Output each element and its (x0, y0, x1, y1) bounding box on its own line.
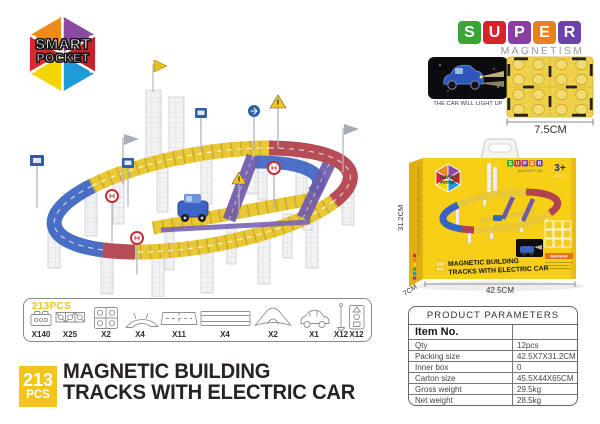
row-value: 12pcs (513, 340, 577, 350)
table-row: Item No. (409, 325, 577, 340)
part-count: X140 (27, 330, 55, 339)
table-row: Carton size 45.5X44X65CM (409, 373, 577, 384)
row-label: Net weight (409, 395, 513, 405)
super-logo: S U P E R (458, 21, 581, 44)
super-letter-s: S (458, 21, 481, 44)
product-sheet: SMART POCKET S U P E R MAGNETISM THE CAR… (0, 0, 600, 424)
pcs-label: PCS (26, 390, 50, 402)
page-title-line1: MAGNETIC BUILDING (63, 362, 409, 383)
part-icon-traffic-signs (350, 306, 365, 330)
svg-text:213: 213 (436, 261, 444, 266)
super-letter-r: R (558, 21, 581, 44)
super-letter-p: P (508, 21, 531, 44)
product-illustration (15, 52, 400, 297)
pcs-badge: 213 PCS (19, 366, 57, 407)
box-dim-width: 42.5CM (486, 286, 514, 295)
table-row: Packing size 42.5X7X31.2CM (409, 351, 577, 362)
part-count: X4 (126, 330, 154, 339)
part-icon-base-brick (31, 312, 51, 326)
part-count: X2 (259, 330, 287, 339)
parts-list: 213PCS (23, 298, 372, 342)
part-icon-pole (338, 304, 345, 330)
row-label: Gross weight (409, 384, 513, 394)
table-row: Net weight 28.5kg (409, 395, 577, 405)
row-value: 45.5X44X65CM (513, 373, 577, 383)
box-super-subtitle: MAGNETISM (518, 169, 543, 173)
part-icon-curved-track (126, 313, 158, 328)
light-up-car-thumbnail (428, 57, 508, 99)
part-icon-short-track (161, 313, 197, 325)
car-caption: THE CAR WILL LIGHT UP (420, 101, 516, 107)
row-label: Packing size (409, 351, 513, 361)
part-icon-ramp-junction (255, 308, 291, 326)
table-row: Inner box 0 (409, 362, 577, 373)
part-count: X12 (345, 330, 369, 339)
page-title-line2: TRACKS WITH ELECTRIC CAR (63, 383, 409, 404)
packaging-box: MAGNETIC BUILDING TRACKS WITH ELECTRIC C… (395, 133, 600, 301)
table-row: Gross weight 29.5kg (409, 384, 577, 395)
svg-text:R: R (538, 161, 542, 167)
row-value (513, 325, 577, 339)
light-up-car-icon (428, 57, 508, 99)
part-count: X2 (92, 330, 120, 339)
row-label: Carton size (409, 373, 513, 383)
row-value: 29.5kg (513, 384, 577, 394)
part-icon-electric-car (301, 310, 329, 327)
table-title: PRODUCT PARAMETERS (409, 307, 577, 325)
super-letter-e: E (533, 21, 556, 44)
part-count: X25 (56, 330, 84, 339)
row-label: Qty (409, 340, 513, 350)
row-value: 42.5X7X31.2CM (513, 351, 577, 361)
row-label: Inner box (409, 362, 513, 372)
row-value: 0 (513, 362, 577, 372)
part-icon-square-tile (95, 308, 118, 329)
magnetic-tile-sample (506, 56, 595, 126)
box-brand-line1: SMART (440, 175, 457, 180)
box-dim-height: 31.2CM (396, 205, 405, 231)
super-letter-u: U (483, 21, 506, 44)
row-label: Item No. (409, 325, 513, 339)
svg-text:U: U (516, 161, 520, 167)
box-tile-grid-icon (545, 221, 571, 247)
part-icon-long-track (201, 312, 250, 326)
tower-flag-icon (153, 60, 167, 92)
box-age-badge: 3+ (554, 163, 566, 174)
box-brand-line2: POCKET (440, 181, 457, 185)
brand-line1: SMART (24, 37, 102, 52)
part-icon-connector-strip (56, 313, 85, 323)
box-side-text: MAGNETIC BUILDING TRACKS WITH ELECTRIC C… (417, 167, 421, 255)
product-parameters-table: PRODUCT PARAMETERS Item No. Qty 12pcs Pa… (408, 306, 578, 406)
part-count: X1 (300, 330, 328, 339)
pcs-number: 213 (23, 371, 53, 389)
row-value: 28.5kg (513, 395, 577, 405)
part-count: X11 (165, 330, 193, 339)
box-age-sub: AGES (554, 174, 566, 178)
table-row: Qty 12pcs (409, 340, 577, 351)
part-count: X4 (211, 330, 239, 339)
page-title: MAGNETIC BUILDING TRACKS WITH ELECTRIC C… (63, 362, 409, 403)
svg-text:PCS: PCS (437, 267, 445, 271)
box-warning-label: WARNING (550, 255, 568, 259)
box-car-chip (516, 239, 543, 257)
